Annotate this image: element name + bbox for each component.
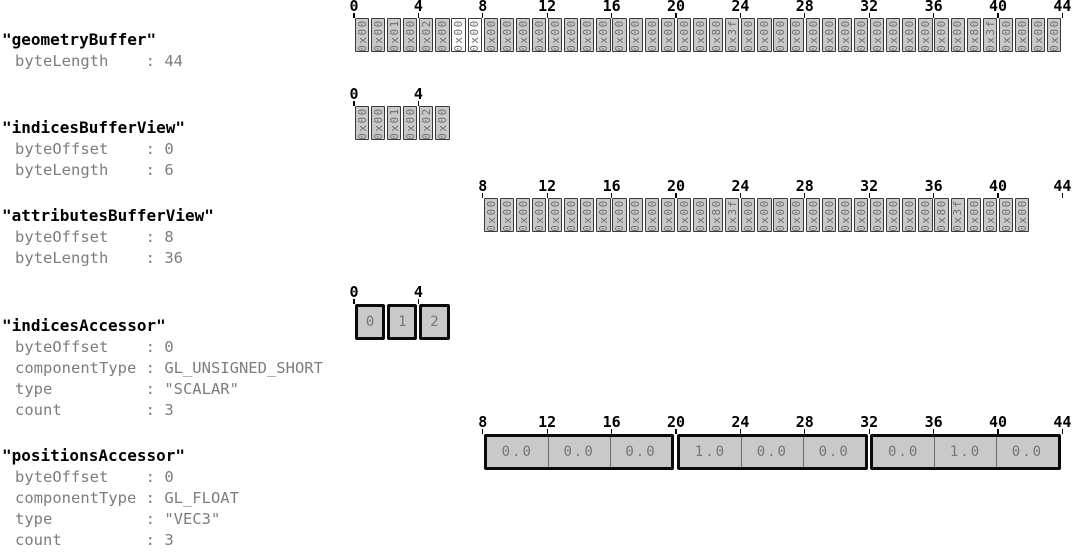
byte-cell: 0x00 xyxy=(596,18,610,52)
byte-cell: 0x02 xyxy=(419,106,433,140)
byte-cell: 0x00 xyxy=(1031,18,1045,52)
byte-cell: 0x00 xyxy=(773,18,787,52)
ruler-label: 20 xyxy=(656,0,696,13)
section-geometry-buffer-labels: "geometryBuffer" byteLength: 44 xyxy=(2,30,183,72)
ruler-label: 36 xyxy=(914,0,954,13)
byte-cell: 0x00 xyxy=(435,106,449,140)
property-line: byteOffset: 0 xyxy=(2,337,323,358)
byte-cell: 0x80 xyxy=(709,18,723,52)
section-title: "geometryBuffer" xyxy=(2,30,183,50)
section-title: "attributesBufferView" xyxy=(2,206,214,226)
section-title: "positionsAccessor" xyxy=(2,446,239,466)
byte-cell: 0x01 xyxy=(387,18,401,52)
section-properties: byteLength: 44 xyxy=(2,51,183,72)
byte-cell: 0x00 xyxy=(468,18,482,52)
ruler-label: 24 xyxy=(720,415,760,429)
byte-cell: 0x00 xyxy=(403,18,417,52)
ruler-label: 8 xyxy=(463,415,503,429)
ruler-label: 32 xyxy=(849,0,889,13)
float-value-cell: 1.0 xyxy=(680,437,741,467)
property-line: byteLength: 6 xyxy=(2,160,185,181)
ruler-label: 44 xyxy=(1042,415,1075,429)
section-title: "indicesAccessor" xyxy=(2,316,323,336)
byte-cell: 0x80 xyxy=(709,198,723,232)
byte-cell: 0x00 xyxy=(645,18,659,52)
section-properties: byteOffset: 0componentType: GL_FLOATtype… xyxy=(2,467,239,551)
ruler-label: 8 xyxy=(463,179,503,193)
byte-cell: 0x00 xyxy=(435,18,449,52)
ruler-tick xyxy=(482,429,483,434)
byte-cell: 0x00 xyxy=(612,18,626,52)
byte-cell: 0x00 xyxy=(854,198,868,232)
byte-cell: 0x00 xyxy=(500,198,514,232)
ruler-tick xyxy=(1062,13,1063,18)
ruler-label: 12 xyxy=(527,0,567,13)
byte-cell: 0x00 xyxy=(645,198,659,232)
byte-cell: 0x00 xyxy=(886,18,900,52)
vector-group: 0.00.00.0 xyxy=(484,434,675,470)
byte-cell: 0x00 xyxy=(822,198,836,232)
buffer-layout-diagram: "geometryBuffer" byteLength: 44 04812162… xyxy=(0,0,1075,555)
byte-cell: 0x00 xyxy=(580,18,594,52)
ruler-label: 16 xyxy=(592,0,632,13)
ruler-tick xyxy=(1062,429,1063,434)
ruler-label: 16 xyxy=(592,415,632,429)
byte-cell: 0x00 xyxy=(355,18,369,52)
property-line: componentType: GL_UNSIGNED_SHORT xyxy=(2,358,323,379)
byte-cell: 0x00 xyxy=(355,106,369,140)
ruler-tick xyxy=(482,13,483,18)
byte-cell: 0x00 xyxy=(371,106,385,140)
ruler-label: 4 xyxy=(398,87,438,101)
byte-cell: 0x00 xyxy=(757,198,771,232)
indices-buffer-view-byte-row: 040x000x000x010x000x020x00 xyxy=(354,88,1075,144)
byte-cell: 0x00 xyxy=(1047,18,1061,52)
property-line: componentType: GL_FLOAT xyxy=(2,488,239,509)
index-value-cell: 2 xyxy=(419,304,449,340)
property-line: byteLength: 44 xyxy=(2,51,183,72)
ruler-label: 28 xyxy=(785,415,825,429)
byte-cell: 0x00 xyxy=(564,198,578,232)
byte-cell: 0x00 xyxy=(870,18,884,52)
ruler-label: 12 xyxy=(527,179,567,193)
byte-cell: 0x00 xyxy=(757,18,771,52)
ruler-label: 20 xyxy=(656,179,696,193)
property-line: byteLength: 36 xyxy=(2,248,214,269)
byte-cell: 0x00 xyxy=(596,198,610,232)
byte-cell: 0x3f xyxy=(725,198,739,232)
float-value-cell: 0.0 xyxy=(610,437,672,467)
byte-cell: 0x01 xyxy=(387,106,401,140)
ruler-label: 44 xyxy=(1042,0,1075,13)
byte-cell: 0x00 xyxy=(1015,198,1029,232)
byte-cell: 0x3f xyxy=(951,198,965,232)
byte-cell: 0x00 xyxy=(773,198,787,232)
byte-cell: 0x00 xyxy=(564,18,578,52)
ruler-label: 16 xyxy=(592,179,632,193)
byte-cell: 0x00 xyxy=(902,198,916,232)
ruler-label: 8 xyxy=(463,0,503,13)
byte-cell: 0x00 xyxy=(918,198,932,232)
property-line: type: "SCALAR" xyxy=(2,379,323,400)
ruler-label: 32 xyxy=(849,415,889,429)
byte-cell: 0x00 xyxy=(661,18,675,52)
byte-cell: 0x80 xyxy=(967,18,981,52)
byte-cell: 0x00 xyxy=(934,18,948,52)
byte-cell: 0x02 xyxy=(419,18,433,52)
byte-cell: 0x00 xyxy=(451,18,465,52)
byte-cell: 0x00 xyxy=(548,198,562,232)
section-attributes-buffer-view-labels: "attributesBufferView" byteOffset: 8byte… xyxy=(2,206,214,269)
float-value-cell: 0.0 xyxy=(996,437,1058,467)
byte-cell: 0x00 xyxy=(484,18,498,52)
byte-cell: 0x80 xyxy=(934,198,948,232)
byte-cell: 0x00 xyxy=(629,198,643,232)
byte-cell: 0x00 xyxy=(902,18,916,52)
ruler-label: 28 xyxy=(785,179,825,193)
property-line: byteOffset: 0 xyxy=(2,139,185,160)
byte-cell: 0x00 xyxy=(1015,18,1029,52)
section-properties: byteOffset: 0byteLength: 6 xyxy=(2,139,185,181)
byte-cell: 0x00 xyxy=(548,18,562,52)
ruler-label: 40 xyxy=(978,415,1018,429)
byte-cell: 0x00 xyxy=(500,18,514,52)
property-line: byteOffset: 0 xyxy=(2,467,239,488)
ruler-tick xyxy=(353,299,354,304)
byte-cell: 0x00 xyxy=(403,106,417,140)
byte-cell: 0x00 xyxy=(532,18,546,52)
property-line: type: "VEC3" xyxy=(2,509,239,530)
byte-cell: 0x00 xyxy=(693,18,707,52)
float-value-cell: 0.0 xyxy=(741,437,803,467)
ruler-label: 28 xyxy=(785,0,825,13)
byte-cell: 0x3f xyxy=(725,18,739,52)
vector-group: 0.01.00.0 xyxy=(870,434,1061,470)
section-indices-buffer-view-labels: "indicesBufferView" byteOffset: 0byteLen… xyxy=(2,118,185,181)
indices-accessor-cell-row: 04012 xyxy=(354,286,1075,342)
ruler-tick xyxy=(418,299,419,304)
byte-cell: 0x00 xyxy=(886,198,900,232)
ruler-tick xyxy=(869,429,870,434)
byte-cell: 0x00 xyxy=(516,18,530,52)
attributes-buffer-view-byte-row: 81216202428323640440x000x000x000x000x000… xyxy=(354,180,1075,236)
byte-cell: 0x00 xyxy=(677,18,691,52)
ruler-label: 24 xyxy=(720,179,760,193)
byte-cell: 0x00 xyxy=(693,198,707,232)
float-value-cell: 0.0 xyxy=(873,437,934,467)
byte-cell: 0x00 xyxy=(918,18,932,52)
byte-cell: 0x00 xyxy=(790,18,804,52)
ruler-tick xyxy=(804,193,805,198)
ruler-label: 44 xyxy=(1042,179,1075,193)
ruler-label: 32 xyxy=(849,179,889,193)
property-line: byteOffset: 8 xyxy=(2,227,214,248)
byte-cell: 0x00 xyxy=(741,198,755,232)
byte-cell: 0x00 xyxy=(516,198,530,232)
property-line: count: 3 xyxy=(2,400,323,421)
float-value-cell: 0.0 xyxy=(548,437,610,467)
ruler-label: 20 xyxy=(656,415,696,429)
section-properties: byteOffset: 0componentType: GL_UNSIGNED_… xyxy=(2,337,323,421)
byte-cell: 0x00 xyxy=(629,18,643,52)
ruler-label: 0 xyxy=(334,285,374,299)
float-value-cell: 1.0 xyxy=(934,437,996,467)
byte-cell: 0x00 xyxy=(806,18,820,52)
byte-cell: 0x00 xyxy=(371,18,385,52)
geometry-buffer-byte-row: 0481216202428323640440x000x000x010x000x0… xyxy=(354,0,1075,56)
ruler-label: 24 xyxy=(720,0,760,13)
index-value-cell: 0 xyxy=(355,304,385,340)
byte-cell: 0x00 xyxy=(983,198,997,232)
ruler-label: 4 xyxy=(398,0,438,13)
byte-cell: 0x00 xyxy=(870,198,884,232)
ruler-label: 36 xyxy=(914,415,954,429)
byte-cell: 0x00 xyxy=(999,198,1013,232)
vector-group: 1.00.00.0 xyxy=(677,434,868,470)
section-properties: byteOffset: 8byteLength: 36 xyxy=(2,227,214,269)
ruler-tick xyxy=(1062,193,1063,198)
float-value-cell: 0.0 xyxy=(803,437,865,467)
byte-cell: 0x00 xyxy=(532,198,546,232)
byte-cell: 0x00 xyxy=(967,198,981,232)
ruler-tick xyxy=(482,193,483,198)
float-value-cell: 0.0 xyxy=(487,437,548,467)
ruler-label: 40 xyxy=(978,0,1018,13)
byte-cell: 0x00 xyxy=(822,18,836,52)
index-value-cell: 1 xyxy=(387,304,417,340)
byte-cell: 0x00 xyxy=(854,18,868,52)
ruler-tick xyxy=(675,429,676,434)
byte-cell: 0x00 xyxy=(838,198,852,232)
byte-cell: 0x00 xyxy=(999,18,1013,52)
section-title: "indicesBufferView" xyxy=(2,118,185,138)
byte-cell: 0x00 xyxy=(580,198,594,232)
ruler-label: 0 xyxy=(334,0,374,13)
property-line: count: 3 xyxy=(2,530,239,551)
ruler-label: 12 xyxy=(527,415,567,429)
section-positions-accessor-labels: "positionsAccessor" byteOffset: 0compone… xyxy=(2,446,239,551)
byte-cell: 0x00 xyxy=(790,198,804,232)
byte-cell: 0x00 xyxy=(838,18,852,52)
byte-cell: 0x00 xyxy=(741,18,755,52)
byte-cell: 0x00 xyxy=(677,198,691,232)
byte-cell: 0x00 xyxy=(612,198,626,232)
ruler-label: 4 xyxy=(398,285,438,299)
ruler-tick xyxy=(804,13,805,18)
ruler-label: 40 xyxy=(978,179,1018,193)
byte-cell: 0x3f xyxy=(983,18,997,52)
byte-cell: 0x00 xyxy=(806,198,820,232)
ruler-label: 0 xyxy=(334,87,374,101)
section-indices-accessor-labels: "indicesAccessor" byteOffset: 0component… xyxy=(2,316,323,421)
positions-accessor-group-row: 81216202428323640440.00.00.01.00.00.00.0… xyxy=(354,416,1075,472)
ruler-label: 36 xyxy=(914,179,954,193)
byte-cell: 0x00 xyxy=(951,18,965,52)
byte-cell: 0x00 xyxy=(484,198,498,232)
byte-cell: 0x00 xyxy=(661,198,675,232)
